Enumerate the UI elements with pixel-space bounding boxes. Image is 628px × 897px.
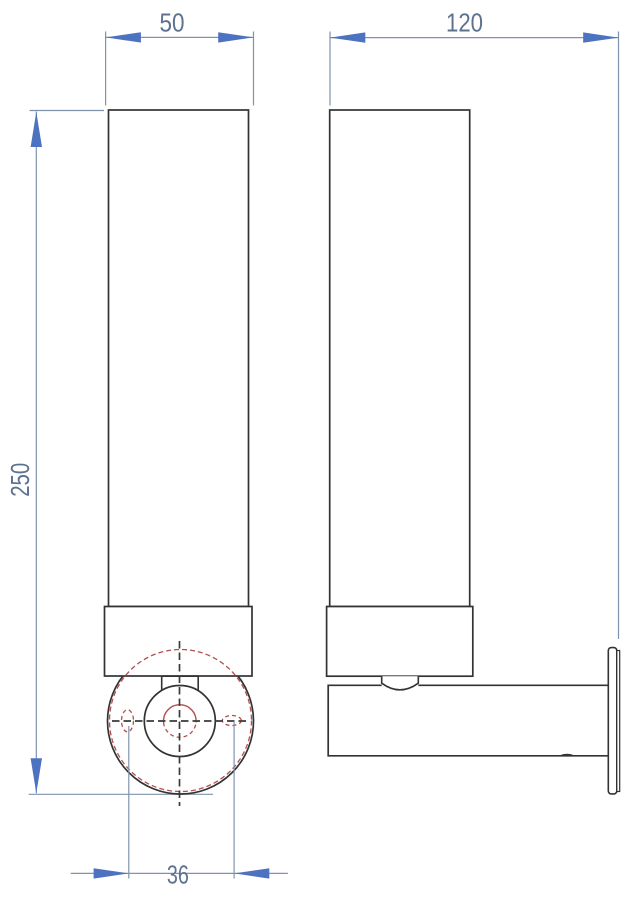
svg-text:250: 250 [7,463,35,497]
svg-text:50: 50 [160,9,185,37]
svg-text:120: 120 [446,9,483,37]
svg-text:36: 36 [167,861,189,889]
